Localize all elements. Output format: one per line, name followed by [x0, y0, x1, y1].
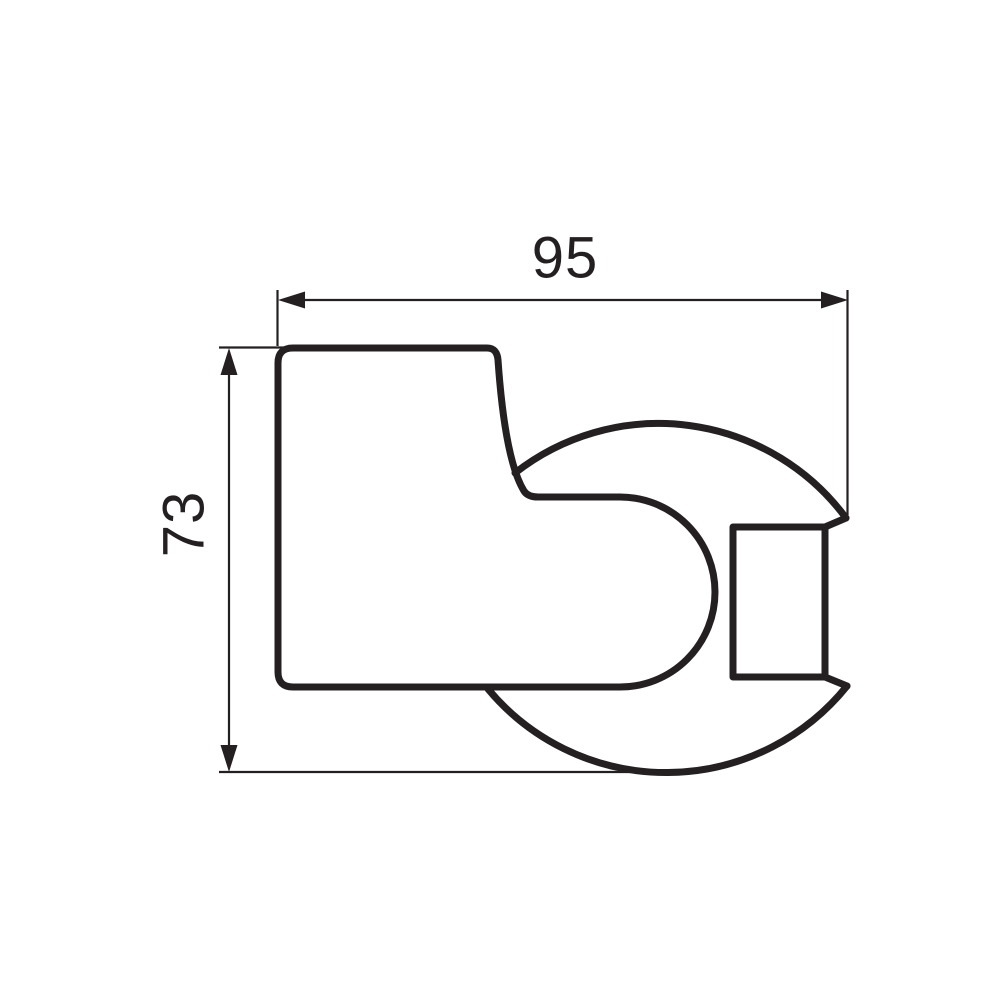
- height-dimension-label: 73: [152, 491, 217, 558]
- drawing-page: 95 73: [0, 0, 1000, 1000]
- drawing-background: [0, 0, 1000, 1000]
- technical-drawing-canvas: 95 73: [0, 0, 1000, 1000]
- width-dimension-label: 95: [532, 226, 599, 291]
